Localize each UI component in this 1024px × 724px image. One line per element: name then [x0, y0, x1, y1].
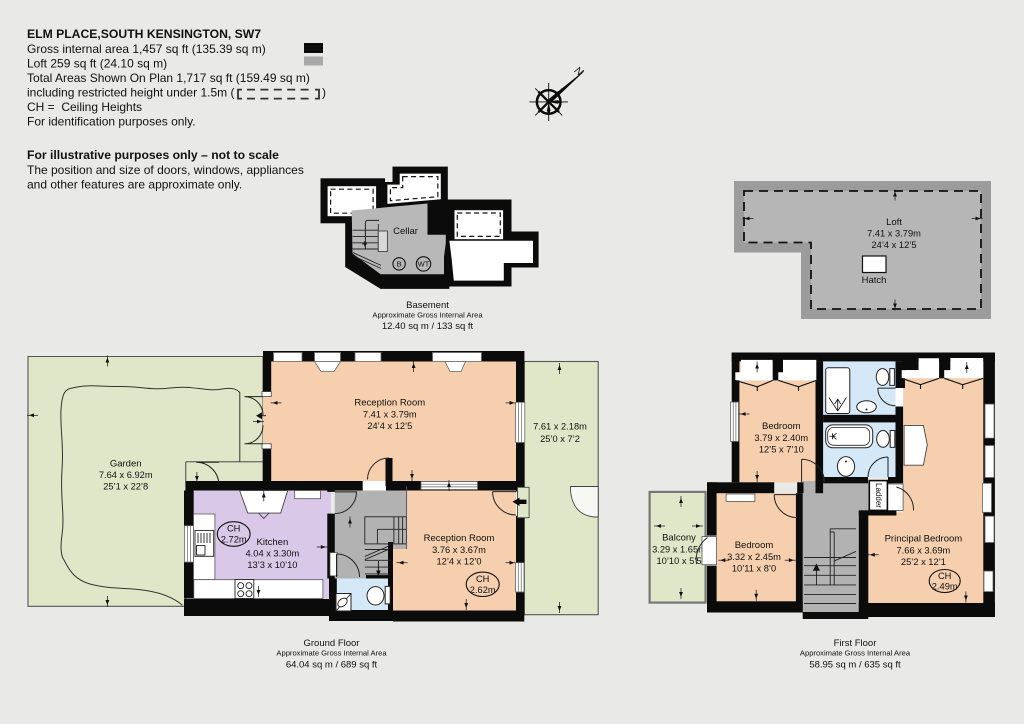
svg-text:B: B: [397, 260, 402, 269]
svg-text:Basement: Basement: [406, 300, 449, 311]
svg-text:Reception Room: Reception Room: [424, 533, 495, 544]
svg-text:Gross internal area 1,457 sq f: Gross internal area 1,457 sq ft (135.39 …: [27, 42, 266, 56]
svg-text:Reception Room: Reception Room: [354, 398, 425, 409]
svg-text:Approximate Gross Internal Are: Approximate Gross Internal Area: [372, 311, 483, 320]
svg-text:and other features are approxi: and other features are approximate only.: [27, 178, 242, 192]
svg-text:64.04 sq m / 689 sq ft: 64.04 sq m / 689 sq ft: [286, 660, 378, 671]
svg-text:25’0 x 7’2: 25’0 x 7’2: [540, 434, 580, 444]
svg-text:3.32 x 2.45m: 3.32 x 2.45m: [727, 552, 781, 562]
svg-text:Loft 259 sq ft (24.10 sq m): Loft 259 sq ft (24.10 sq m): [27, 57, 167, 71]
svg-text:CH = Ceiling Heights: CH = Ceiling Heights: [27, 100, 142, 114]
svg-text:7.61 x 2.18m: 7.61 x 2.18m: [533, 422, 587, 432]
svg-text:2.49m: 2.49m: [932, 581, 958, 591]
svg-text:2.62m: 2.62m: [470, 585, 496, 595]
svg-text:12.40 sq m / 133 sq ft: 12.40 sq m / 133 sq ft: [382, 321, 474, 332]
svg-text:Bedroom: Bedroom: [762, 421, 801, 432]
svg-text:First Floor: First Floor: [834, 638, 877, 649]
svg-text:Bedroom: Bedroom: [735, 540, 774, 551]
svg-text:CH: CH: [227, 524, 240, 534]
svg-text:ELM PLACE,SOUTH KENSINGTON, SW: ELM PLACE,SOUTH KENSINGTON, SW7: [27, 27, 261, 41]
svg-text:Loft: Loft: [886, 217, 902, 228]
svg-text:12’5 x 7’10: 12’5 x 7’10: [759, 445, 804, 455]
svg-text:12’4 x 12’0: 12’4 x 12’0: [437, 557, 482, 567]
svg-text:Cellar: Cellar: [393, 226, 418, 237]
svg-text:2.72m: 2.72m: [221, 535, 247, 545]
svg-text:58.95 sq m / 635 sq ft: 58.95 sq m / 635 sq ft: [809, 660, 901, 671]
svg-text:Kitchen: Kitchen: [257, 537, 289, 548]
svg-text:7.66 x 3.69m: 7.66 x 3.69m: [897, 546, 951, 556]
svg-text:Ladder: Ladder: [874, 483, 883, 508]
svg-text:Garden: Garden: [110, 459, 142, 470]
svg-text:including restricted height un: including restricted height under 1.5m (: [27, 86, 234, 100]
svg-text:Principal Bedroom: Principal Bedroom: [885, 534, 963, 545]
svg-text:24’4 x 12’5: 24’4 x 12’5: [872, 240, 917, 250]
svg-text:CH: CH: [938, 571, 951, 581]
svg-text:25’2 x 12’1: 25’2 x 12’1: [901, 557, 946, 567]
svg-text:7.64 x 6.92m: 7.64 x 6.92m: [99, 470, 153, 480]
svg-text:Approximate Gross Internal Are: Approximate Gross Internal Area: [800, 649, 911, 658]
svg-text:The position and size of doors: The position and size of doors, windows,…: [27, 163, 304, 177]
svg-text:WT: WT: [418, 260, 430, 269]
svg-text:3.76 x 3.67m: 3.76 x 3.67m: [432, 545, 486, 555]
svg-text:Hatch: Hatch: [862, 275, 887, 286]
svg-text:CH: CH: [476, 574, 489, 584]
svg-text:10’10 x 5’5: 10’10 x 5’5: [657, 556, 702, 566]
svg-text:25’1 x 22’8: 25’1 x 22’8: [103, 482, 148, 492]
svg-text:7.41 x 3.79m: 7.41 x 3.79m: [363, 410, 417, 420]
svg-text:4.04 x 3.30m: 4.04 x 3.30m: [246, 549, 300, 559]
svg-text:For illustrative purposes only: For illustrative purposes only – not to …: [27, 148, 279, 162]
svg-text:10’11 x 8’0: 10’11 x 8’0: [732, 563, 776, 573]
svg-text:For identification purposes on: For identification purposes only.: [27, 115, 196, 129]
svg-text:Approximate Gross Internal Are: Approximate Gross Internal Area: [276, 649, 387, 658]
svg-text:13’3 x 10’10: 13’3 x 10’10: [247, 560, 297, 570]
svg-text:7.41 x 3.79m: 7.41 x 3.79m: [867, 229, 921, 239]
svg-text:): ): [322, 86, 326, 100]
svg-text:Balcony: Balcony: [662, 533, 696, 544]
svg-text:24’4 x 12’5: 24’4 x 12’5: [367, 421, 412, 431]
svg-text:3.79 x 2.40m: 3.79 x 2.40m: [754, 433, 808, 443]
svg-text:Total Areas Shown On Plan 1,71: Total Areas Shown On Plan 1,717 sq ft (1…: [27, 71, 310, 85]
svg-text:Ground Floor: Ground Floor: [304, 638, 360, 649]
